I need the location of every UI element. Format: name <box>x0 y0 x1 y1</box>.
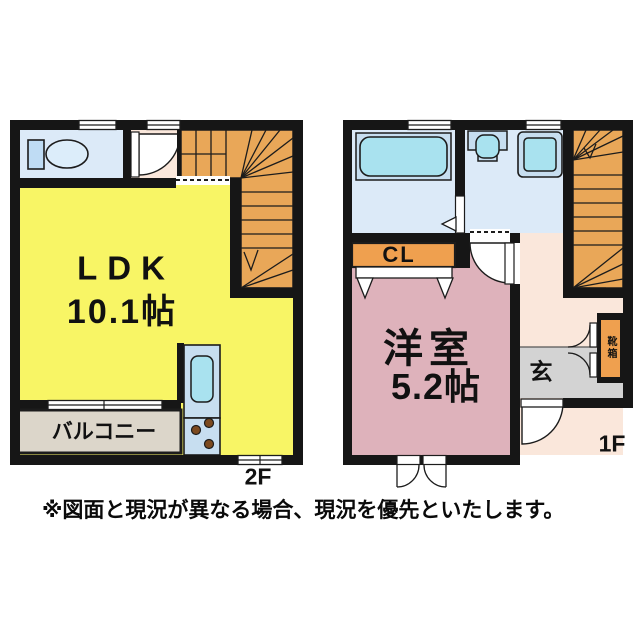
floor-1f-label: 1F <box>599 433 626 456</box>
toilet-icon <box>28 140 88 169</box>
floor-2f-label: 2F <box>245 466 272 489</box>
western-room-label: 洋室 <box>383 329 475 369</box>
kitchen-unit <box>184 345 220 455</box>
closet-label: CL <box>382 244 415 266</box>
floorplan-page: LDK 10.1帖 バルコニー 2F 洋室 5.2帖 CL 玄 靴箱 1F ※図… <box>0 0 640 640</box>
door-leaf-2f-hall <box>131 132 139 177</box>
stairs-1f <box>573 130 623 288</box>
balcony-label: バルコニー <box>52 422 157 443</box>
western-room-size-label: 5.2帖 <box>391 369 481 405</box>
toilet-room <box>20 130 123 178</box>
entrance-label: 玄 <box>530 361 553 384</box>
disclaimer-text: ※図面と現況が異なる場合、現況を優先といたします。 <box>42 494 564 524</box>
bathtub-icon <box>360 137 447 176</box>
shoe-box-label: 靴箱 <box>605 336 615 360</box>
washing-machine-icon <box>518 132 562 177</box>
washroom <box>465 130 563 233</box>
bathroom <box>352 130 455 233</box>
shoe-box-door-leaf <box>590 353 597 377</box>
stair-hall-2f <box>131 130 180 178</box>
washroom-opening <box>470 229 510 243</box>
stair-opening-2f <box>176 176 230 185</box>
balcony-window <box>48 401 162 410</box>
ldk-room-label: LDK <box>77 252 175 285</box>
ldk-size-label: 10.1帖 <box>67 295 177 329</box>
kitchen-sink-icon <box>191 356 213 402</box>
shoe-box-door-leaf <box>590 323 597 347</box>
floorplan-1f <box>343 120 633 487</box>
